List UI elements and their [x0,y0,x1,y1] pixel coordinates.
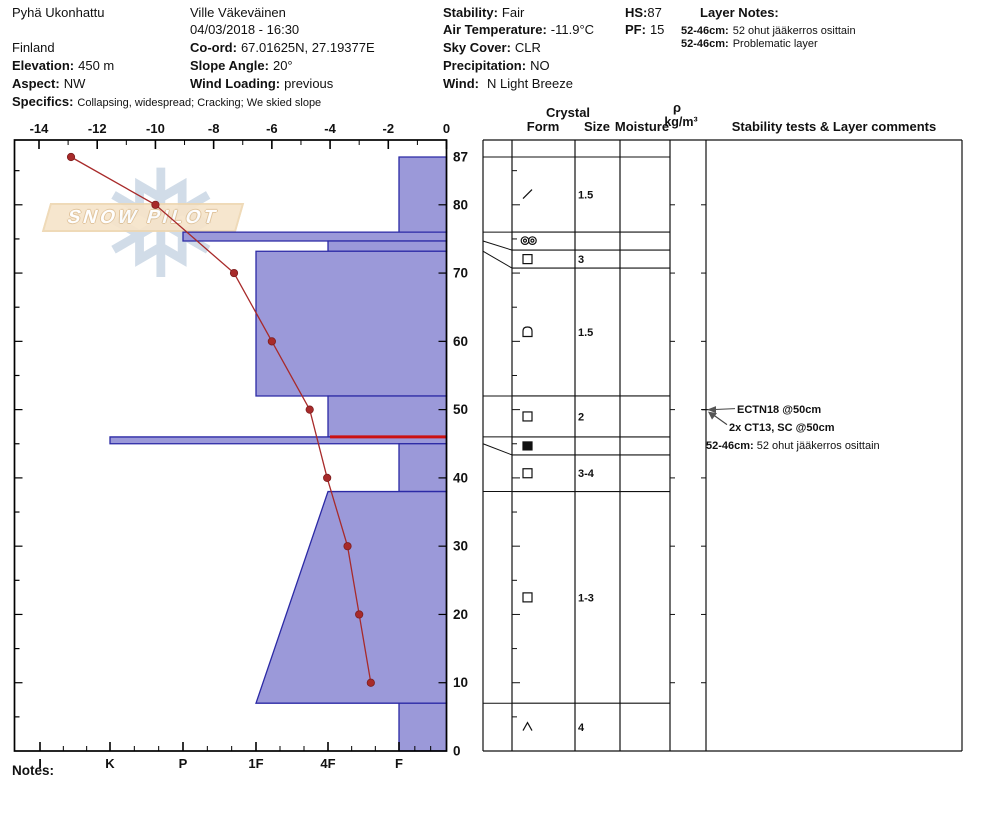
hardness-axis-label: P [179,756,188,771]
crystal-form-DF [523,190,532,199]
temperature-point [230,269,237,276]
crystal-form-symbol [523,412,532,421]
crystal-form-symbol [523,723,532,731]
stability-test-label: ECTN18 @50cm [737,404,821,416]
hardness-axis-label: F [395,756,403,771]
crystal-form-DH [523,723,532,731]
crystal-form-FC [523,593,532,602]
crystal-form-symbol [523,327,532,337]
layer-comment-range: 52-46cm: [706,440,754,452]
layer-depth-connector [483,444,512,455]
column-header-density: ρ [673,100,681,115]
temperature-point [268,338,275,345]
column-header-comments: Stability tests & Layer comments [732,119,936,134]
snowpilot-report: Pyhä Ukonhattu Finland Elevation:450 m A… [0,0,994,840]
hardness-layer-bar [183,232,447,241]
crystal-form-MFcr [524,239,527,242]
temp-axis-label: -8 [208,121,220,136]
test-arrow [713,415,727,425]
depth-axis-label: 87 [453,150,468,165]
crystal-size-value: 2 [578,411,584,423]
notes-label: Notes: [12,763,54,778]
hardness-axis-label: 4F [320,756,335,771]
depth-axis-label: 60 [453,334,468,349]
depth-axis-label: 30 [453,539,468,554]
depth-axis-label: 40 [453,470,468,485]
crystal-form-symbol [523,593,532,602]
depth-axis-label: 50 [453,402,468,417]
column-header-form: Form [527,119,560,134]
temp-axis-label: 0 [443,121,450,136]
hardness-axis-label: 1F [248,756,263,771]
crystal-form-MFcr [521,237,529,245]
crystal-form-symbol [521,237,536,245]
depth-axis-label: 80 [453,197,468,212]
layer-depth-connector [483,241,512,250]
hardness-layer-bar [328,396,447,437]
crystal-form-symbol [523,255,532,264]
depth-axis-label: 70 [453,266,468,281]
column-header-density-unit: kg/m³ [664,115,697,129]
hardness-layer-bar [399,444,447,492]
crystal-form-MFcr [529,237,537,245]
temp-axis-label: -14 [30,121,50,136]
crystal-form-FC [523,412,532,421]
layer-comment: 52-46cm: 52 ohut jääkerros osittain [706,440,880,452]
hardness-layer-bar [256,251,447,396]
column-header-moisture: Moisture [615,119,669,134]
crystal-form-symbol [523,469,532,478]
crystal-size-value: 1.5 [578,327,593,339]
hardness-layer-bar [399,703,447,751]
crystal-form-FC [523,469,532,478]
crystal-form-FC [523,255,532,264]
temperature-point [323,474,330,481]
temperature-point [344,542,351,549]
temperature-point [367,679,374,686]
crystal-form-FCxr [523,327,532,337]
layer-comment-text: 52 ohut jääkerros osittain [754,440,880,452]
temperature-point [355,611,362,618]
column-header-crystal: Crystal [546,105,590,120]
hardness-layer-bar [399,157,447,232]
depth-axis-label: 0 [453,744,461,759]
hardness-axis-label: K [105,756,115,771]
temp-axis-label: -12 [88,121,107,136]
crystal-size-value: 3-4 [578,468,595,480]
column-header-size: Size [584,119,610,134]
crystal-size-value: 1.5 [578,190,593,202]
temperature-point [152,201,159,208]
temperature-point [67,153,74,160]
snow-profile-chart: -14-12-10-8-6-4-20IKP1F4FF87807060504030… [0,0,994,840]
crystal-size-value: 4 [578,722,585,734]
crystal-size-value: 1-3 [578,592,594,604]
layer-depth-connector [483,251,512,268]
hardness-layer-bar [328,241,447,251]
temp-axis-label: -4 [324,121,336,136]
hardness-layer-bar [256,492,447,704]
temp-axis-label: -2 [383,121,395,136]
crystal-form-MFcr [531,239,534,242]
temp-axis-label: -10 [146,121,165,136]
crystal-form-symbol [523,442,532,450]
crystal-form-IF [523,442,532,450]
crystal-size-value: 3 [578,254,584,266]
temperature-point [306,406,313,413]
crystal-form-symbol [523,190,532,199]
depth-axis-label: 20 [453,607,468,622]
depth-axis-label: 10 [453,675,468,690]
stability-test-label: 2x CT13, SC @50cm [729,422,835,434]
temp-axis-label: -6 [266,121,278,136]
